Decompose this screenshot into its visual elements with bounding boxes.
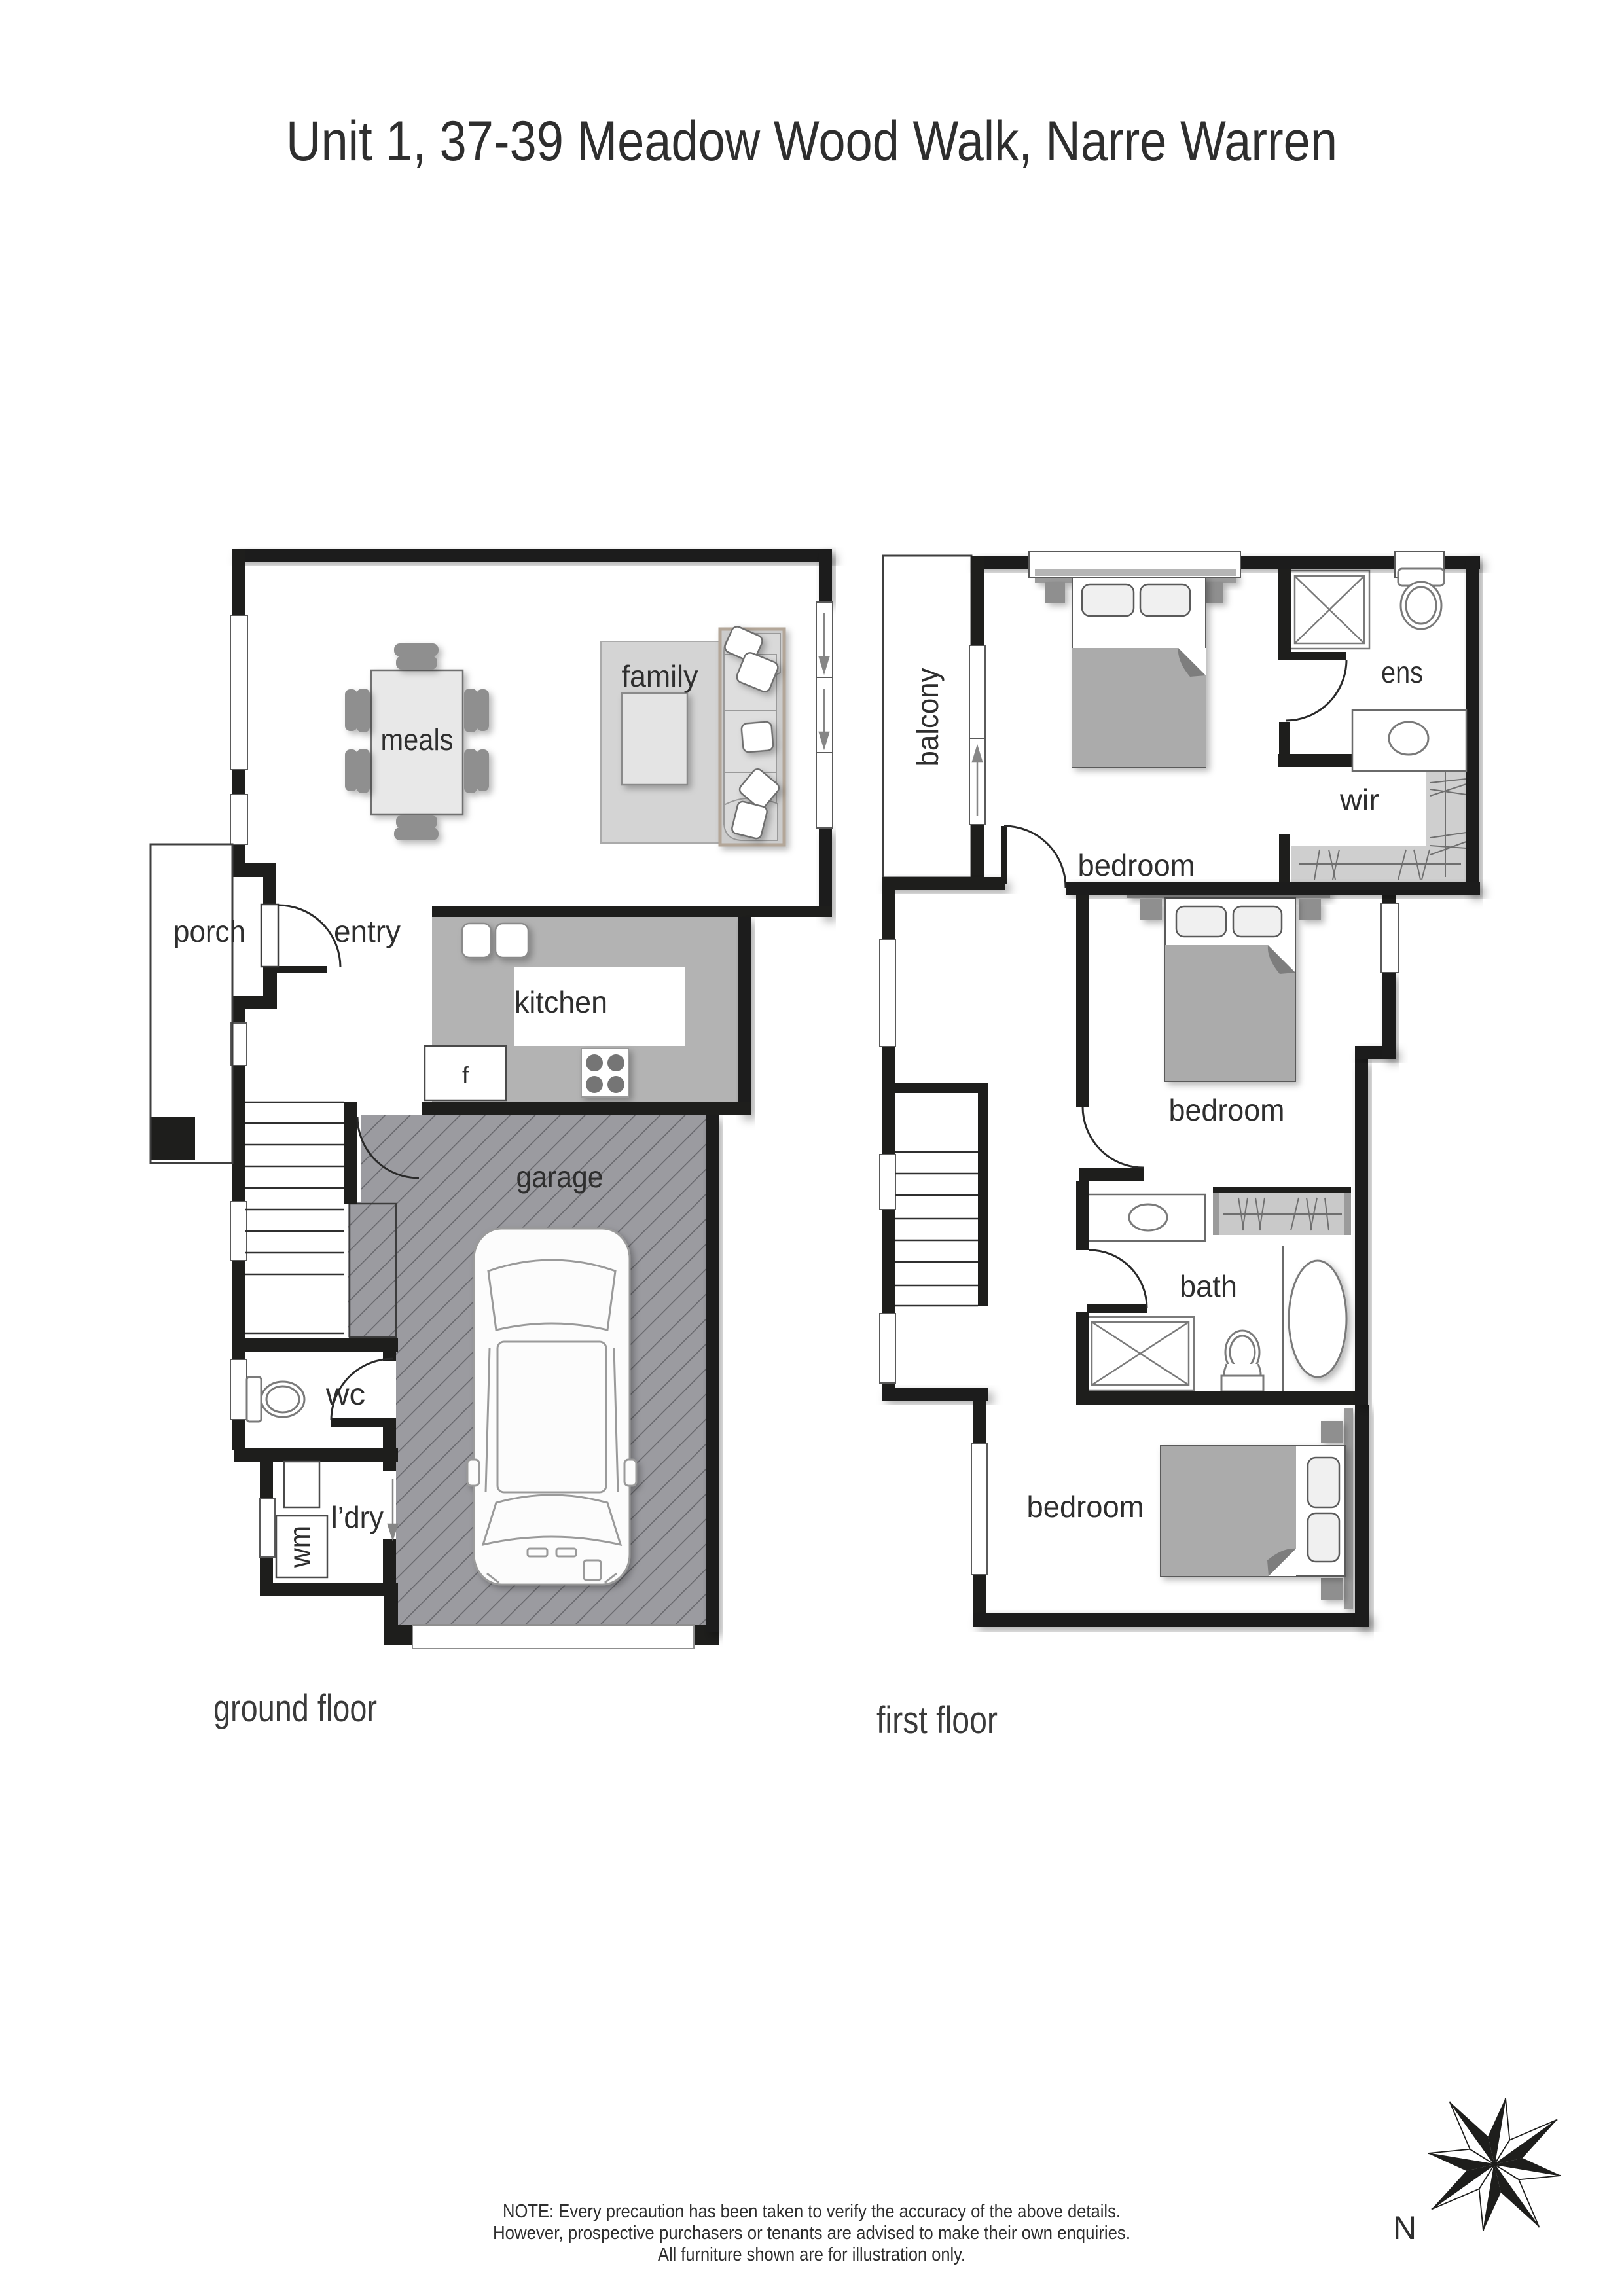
svg-text:kitchen: kitchen [514, 985, 607, 1019]
svg-text:entry: entry [334, 914, 401, 948]
svg-text:NOTE: Every precaution has bee: NOTE: Every precaution has been taken to… [503, 2201, 1121, 2222]
svg-text:bedroom: bedroom [1027, 1490, 1144, 1524]
svg-text:ens: ens [1381, 655, 1423, 689]
svg-text:wm: wm [283, 1526, 317, 1568]
svg-text:Unit 1, 37-39 Meadow Wood Walk: Unit 1, 37-39 Meadow Wood Walk, Narre Wa… [286, 110, 1337, 173]
svg-text:bedroom: bedroom [1078, 848, 1195, 882]
svg-text:garage: garage [516, 1160, 604, 1194]
svg-text:meals: meals [381, 723, 454, 757]
svg-text:f: f [462, 1062, 469, 1088]
svg-text:N: N [1393, 2210, 1416, 2246]
svg-text:porch: porch [173, 914, 245, 948]
svg-text:All furniture shown are for il: All furniture shown are for illustration… [658, 2244, 965, 2265]
svg-text:bath: bath [1180, 1269, 1237, 1303]
svg-text:family: family [622, 659, 698, 693]
svg-text:wir: wir [1339, 783, 1379, 817]
svg-text:ground floor: ground floor [213, 1687, 377, 1730]
svg-text:balcony: balcony [911, 668, 945, 767]
svg-text:l’dry: l’dry [331, 1500, 384, 1534]
svg-text:bedroom: bedroom [1169, 1093, 1285, 1127]
svg-text:wc: wc [325, 1377, 365, 1411]
svg-text:first floor: first floor [876, 1699, 998, 1742]
svg-text:However, prospective purchaser: However, prospective purchasers or tenan… [493, 2223, 1130, 2244]
